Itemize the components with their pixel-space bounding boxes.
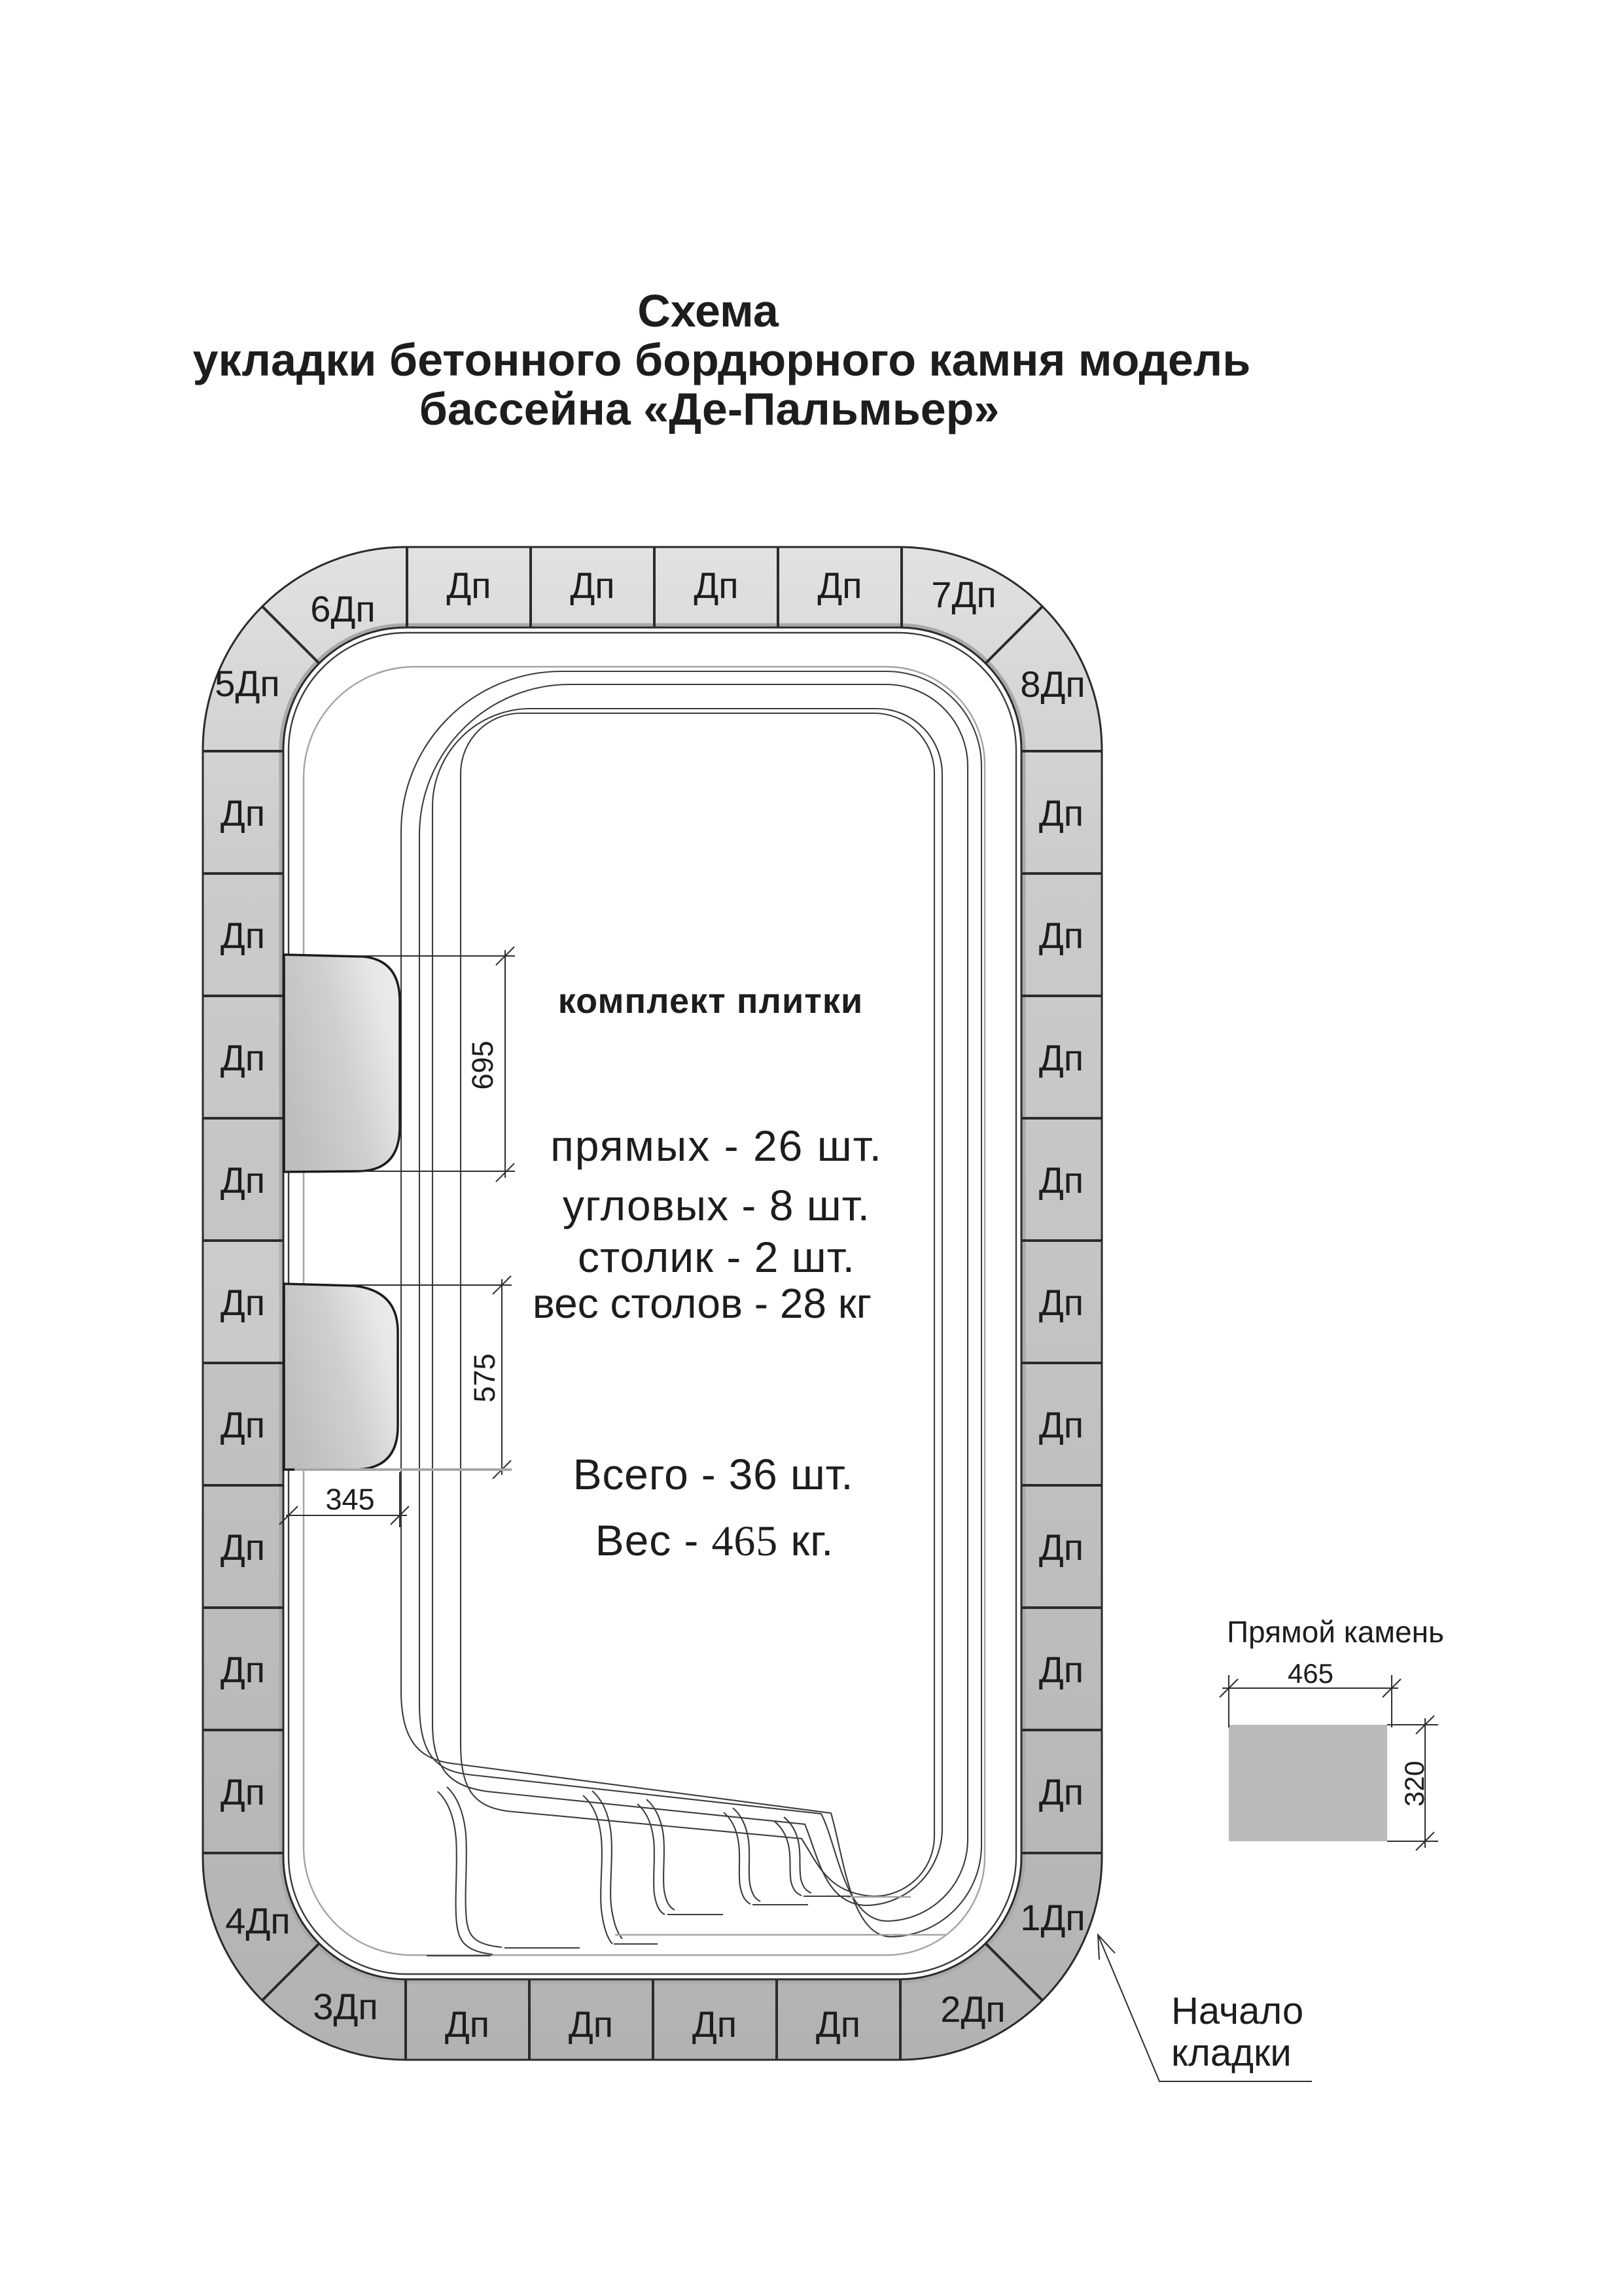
svg-text:угловых - 8 шт.: угловых - 8 шт.: [563, 1181, 870, 1229]
svg-text:Дп: Дп: [1039, 915, 1084, 956]
svg-text:бассейна «Де-Пальмьер»: бассейна «Де-Пальмьер»: [419, 383, 1000, 434]
svg-text:столик - 2 шт.: столик - 2 шт.: [578, 1233, 855, 1281]
svg-text:прямых - 26 шт.: прямых - 26 шт.: [550, 1122, 883, 1170]
svg-text:1Дп: 1Дп: [1020, 1897, 1085, 1938]
svg-text:Дп: Дп: [221, 792, 265, 834]
svg-text:Дп: Дп: [1039, 1282, 1084, 1323]
svg-text:Дп: Дп: [221, 915, 265, 956]
svg-text:комплект плитки: комплект плитки: [558, 981, 864, 1021]
svg-text:695: 695: [466, 1040, 499, 1089]
svg-text:Дп: Дп: [221, 1649, 265, 1690]
svg-text:Дп: Дп: [221, 1159, 265, 1201]
svg-text:Дп: Дп: [1039, 1771, 1084, 1812]
svg-text:укладки бетонного бордюрного к: укладки бетонного бордюрного камня модел…: [193, 334, 1251, 385]
svg-text:Дп: Дп: [694, 565, 738, 606]
svg-text:Дп: Дп: [569, 2004, 613, 2045]
svg-text:Дп: Дп: [1039, 1404, 1084, 1445]
svg-text:575: 575: [468, 1353, 501, 1402]
svg-text:Дп: Дп: [446, 565, 491, 606]
svg-text:Дп: Дп: [570, 565, 614, 606]
svg-text:345: 345: [325, 1483, 374, 1516]
svg-text:Дп: Дп: [221, 1037, 265, 1078]
svg-text:3Дп: 3Дп: [313, 1986, 378, 2027]
svg-text:Дп: Дп: [221, 1771, 265, 1812]
svg-text:Дп: Дп: [221, 1282, 265, 1323]
svg-text:Дп: Дп: [1039, 1159, 1084, 1201]
svg-text:Дп: Дп: [817, 565, 862, 606]
svg-text:Прямой камень: Прямой камень: [1227, 1615, 1444, 1649]
svg-text:Дп: Дп: [1039, 1037, 1084, 1078]
svg-text:7Дп: 7Дп: [931, 574, 996, 615]
svg-text:5Дп: 5Дп: [215, 663, 279, 704]
svg-text:Дп: Дп: [221, 1404, 265, 1445]
svg-text:Дп: Дп: [1039, 792, 1084, 834]
svg-text:8Дп: 8Дп: [1020, 663, 1085, 705]
svg-text:Дп: Дп: [445, 2004, 489, 2045]
svg-text:кладки: кладки: [1171, 2032, 1292, 2074]
svg-text:Схема: Схема: [637, 285, 779, 336]
svg-text:Начало: Начало: [1171, 1990, 1303, 2032]
svg-text:2Дп: 2Дп: [940, 1988, 1005, 2030]
svg-text:Дп: Дп: [816, 2004, 860, 2045]
svg-text:Всего - 36 шт.: Всего - 36 шт.: [573, 1450, 854, 1498]
svg-text:465: 465: [1288, 1658, 1333, 1689]
svg-text:6Дп: 6Дп: [310, 588, 375, 629]
svg-text:Дп: Дп: [1039, 1527, 1084, 1568]
svg-text:Дп: Дп: [221, 1527, 265, 1568]
svg-text:320: 320: [1399, 1761, 1430, 1807]
svg-text:Дп: Дп: [1039, 1649, 1084, 1690]
svg-text:Вес - 465 кг.: Вес - 465 кг.: [595, 1516, 834, 1565]
svg-text:Дп: Дп: [692, 2004, 737, 2045]
svg-text:4Дп: 4Дп: [225, 1900, 290, 1941]
svg-text:вес столов - 28 кг: вес столов - 28 кг: [533, 1280, 872, 1327]
